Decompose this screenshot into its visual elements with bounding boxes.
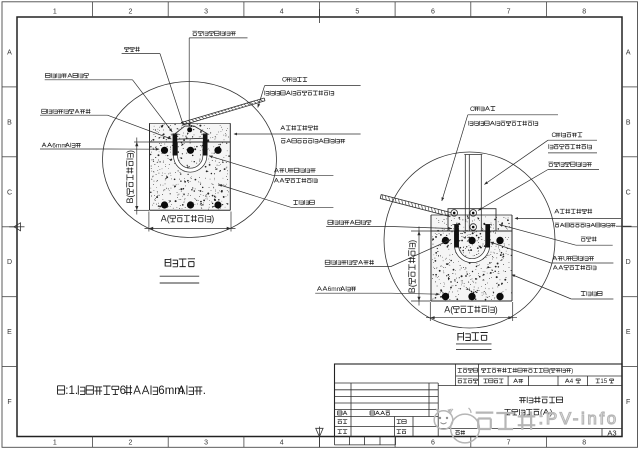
svg-text:B: B bbox=[626, 119, 631, 126]
svg-text:7: 7 bbox=[507, 440, 511, 447]
svg-text:B(: B( bbox=[407, 284, 417, 293]
svg-text::PV-info: :PV-info bbox=[539, 409, 619, 428]
svg-text:8: 8 bbox=[582, 9, 586, 16]
svg-text:4: 4 bbox=[570, 378, 574, 385]
svg-text:E: E bbox=[626, 329, 631, 336]
svg-text:U: U bbox=[563, 256, 568, 263]
svg-text:D: D bbox=[7, 259, 12, 266]
svg-text:F: F bbox=[626, 399, 630, 406]
svg-text:6: 6 bbox=[431, 9, 435, 16]
svg-text:): ) bbox=[571, 367, 573, 374]
svg-text:4: 4 bbox=[280, 440, 284, 447]
svg-text:): ) bbox=[495, 304, 498, 314]
svg-text:): ) bbox=[211, 214, 214, 224]
svg-text:1: 1 bbox=[53, 440, 57, 447]
svg-text:6mm: 6mm bbox=[328, 286, 342, 293]
svg-text:E: E bbox=[7, 329, 12, 336]
svg-text:5: 5 bbox=[355, 9, 359, 16]
svg-text:6mm: 6mm bbox=[158, 385, 184, 397]
svg-text:6: 6 bbox=[431, 440, 435, 447]
svg-text:3: 3 bbox=[204, 440, 208, 447]
svg-text:C: C bbox=[626, 189, 631, 196]
svg-text:15: 15 bbox=[600, 378, 607, 385]
svg-text:(: ( bbox=[549, 367, 551, 374]
svg-text:4: 4 bbox=[280, 9, 284, 16]
svg-text:F: F bbox=[7, 399, 11, 406]
svg-text:E: E bbox=[164, 258, 171, 270]
svg-text:U: U bbox=[285, 168, 290, 175]
svg-text:A: A bbox=[626, 50, 631, 57]
svg-text:B: B bbox=[7, 119, 12, 126]
svg-text:D: D bbox=[626, 259, 631, 266]
svg-text::1.: :1. bbox=[65, 385, 78, 397]
svg-text:2: 2 bbox=[128, 440, 132, 447]
svg-text:A(: A( bbox=[161, 214, 170, 224]
svg-text:8: 8 bbox=[582, 440, 586, 447]
svg-text:C: C bbox=[552, 132, 557, 139]
svg-text:7: 7 bbox=[507, 9, 511, 16]
svg-text:A3: A3 bbox=[607, 429, 616, 438]
svg-text:6: 6 bbox=[120, 385, 126, 397]
svg-text:): ) bbox=[125, 150, 135, 153]
svg-text:A: A bbox=[7, 50, 12, 57]
svg-text:C: C bbox=[7, 189, 12, 196]
svg-text:2: 2 bbox=[128, 9, 132, 16]
svg-text:3: 3 bbox=[204, 9, 208, 16]
svg-text:F: F bbox=[457, 331, 464, 343]
svg-text:B(: B( bbox=[125, 195, 135, 204]
svg-text:A(: A( bbox=[444, 304, 453, 314]
svg-text:6mm: 6mm bbox=[52, 142, 66, 149]
svg-text:1: 1 bbox=[53, 9, 57, 16]
svg-text:C: C bbox=[470, 106, 475, 113]
svg-text:C: C bbox=[282, 77, 287, 84]
svg-text:): ) bbox=[407, 240, 417, 243]
svg-text:.: . bbox=[203, 385, 206, 397]
